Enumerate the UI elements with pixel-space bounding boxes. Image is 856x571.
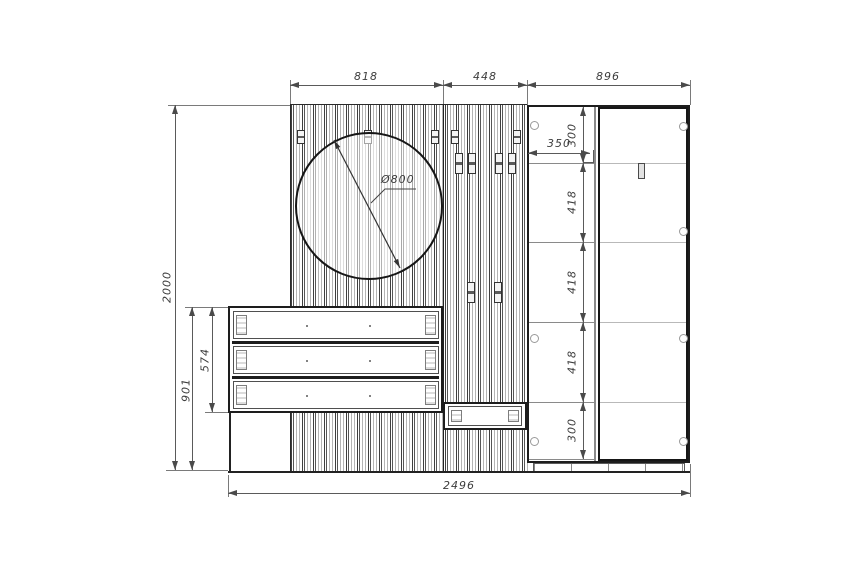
furniture-drawing-canvas: Ø800 (0, 0, 856, 571)
drawer-front (448, 406, 522, 426)
arrowhead (209, 307, 215, 316)
dim-label-418-1: 418 (566, 190, 579, 214)
arrowhead (228, 490, 237, 496)
arrowhead (580, 107, 586, 116)
shelf-pin (530, 334, 539, 343)
arrowhead (189, 461, 195, 470)
shelf-pin (530, 121, 539, 130)
dim-label-574: 574 (199, 348, 212, 372)
dim-label-448: 448 (473, 70, 497, 83)
drawer-front (233, 346, 439, 374)
drawer-mark (369, 325, 371, 327)
dim-label-2496: 2496 (443, 479, 475, 492)
floor-line (228, 471, 690, 473)
extension-line (166, 470, 228, 471)
arrowhead (209, 403, 215, 412)
hinge (679, 122, 688, 131)
bench-drawer (443, 402, 527, 430)
drawer-mark (306, 395, 308, 397)
arrowhead (172, 461, 178, 470)
door-handle (638, 163, 645, 179)
mirror-diameter-label: Ø800 (381, 173, 415, 186)
arrowhead (394, 259, 400, 268)
arrowhead (681, 82, 690, 88)
dim-line-top (290, 85, 690, 86)
arrowhead (290, 82, 299, 88)
arrowhead (528, 150, 537, 156)
hinge (679, 334, 688, 343)
drawer-mark (306, 360, 308, 362)
dim-label-818: 818 (354, 70, 378, 83)
leader-line (371, 189, 416, 203)
drawer-front (233, 311, 439, 339)
drawer-unit-side-panel (229, 413, 231, 472)
arrowhead (527, 82, 536, 88)
extension-line (205, 412, 228, 413)
hinge (679, 227, 688, 236)
arrowhead (580, 313, 586, 322)
drawer-divider (232, 376, 439, 379)
arrowhead (580, 450, 586, 459)
dim-label-896: 896 (596, 70, 620, 83)
drawer-front (233, 381, 439, 409)
hinge (679, 437, 688, 446)
extension-line (690, 80, 691, 105)
diameter-line (334, 140, 400, 268)
arrowhead (580, 233, 586, 242)
shelf-line (529, 459, 595, 460)
arrowhead (580, 393, 586, 402)
dim-label-901: 901 (180, 378, 193, 402)
arrowhead (681, 490, 690, 496)
wardrobe-door (598, 107, 688, 461)
drawer-mark (306, 325, 308, 327)
dim-label-350: 350 (547, 137, 571, 150)
wardrobe-divider (594, 107, 596, 461)
dim-bracket (584, 150, 594, 163)
dim-label-418-3: 418 (566, 350, 579, 374)
arrowhead (518, 82, 527, 88)
arrowhead (443, 82, 452, 88)
arrowhead (434, 82, 443, 88)
dim-label-418-2: 418 (566, 270, 579, 294)
arrowhead (189, 307, 195, 316)
drawer-mark (369, 395, 371, 397)
drawer-unit (228, 306, 443, 413)
dim-line-2496 (228, 493, 690, 494)
dim-line-2000 (175, 105, 176, 470)
drawer-mark (369, 360, 371, 362)
arrowhead (172, 105, 178, 114)
shelf-pin (530, 437, 539, 446)
arrowhead (334, 140, 340, 149)
arrowhead (580, 322, 586, 331)
dim-line-574 (212, 307, 213, 412)
arrowhead (580, 402, 586, 411)
dim-label-2000: 2000 (161, 271, 174, 303)
arrowhead (580, 242, 586, 251)
dim-label-300-bottom: 300 (566, 418, 579, 442)
drawer-divider (232, 341, 439, 344)
extension-line (690, 464, 691, 497)
extension-line (168, 105, 290, 106)
arrowhead (580, 163, 586, 172)
